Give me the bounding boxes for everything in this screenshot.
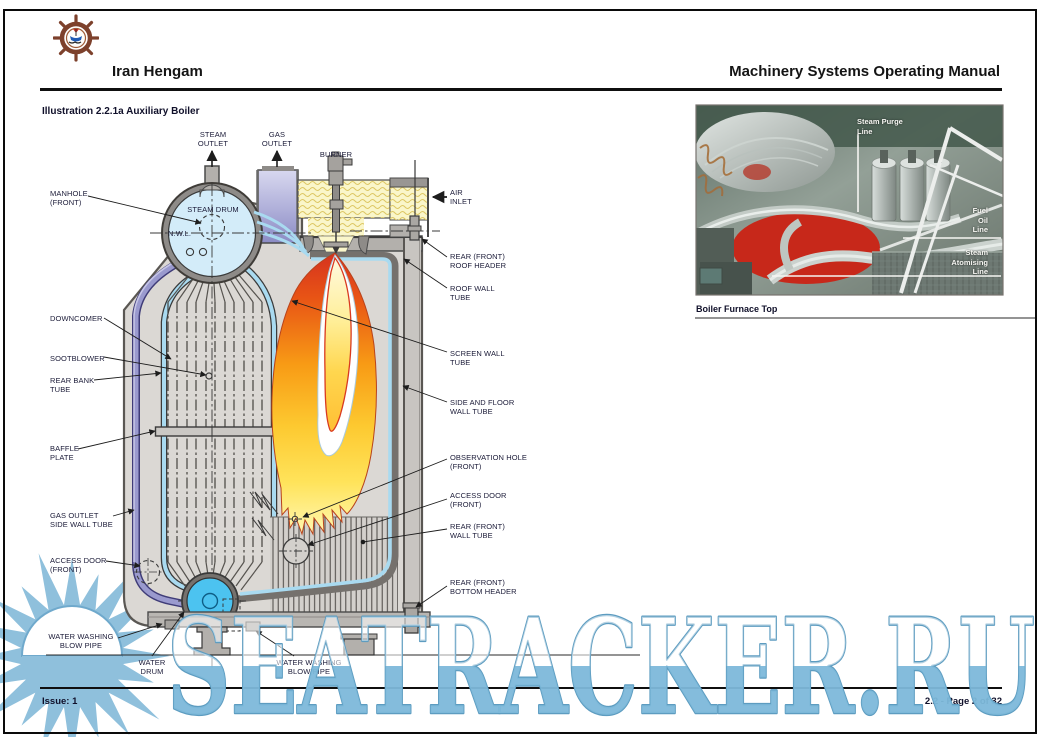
- label-rear-wall-tube: REAR (FRONT) WALL TUBE: [450, 522, 530, 540]
- label-downcomer: DOWNCOMER: [50, 314, 130, 323]
- support-block: [344, 639, 374, 655]
- label-rear-bottom-header: REAR (FRONT) BOTTOM HEADER: [450, 578, 530, 596]
- photo-label-fuel-oil: Fuel Oil Line: [950, 206, 988, 235]
- label-access-door-left: ACCESS DOOR (FRONT): [50, 556, 130, 574]
- insulated-dome: [695, 112, 835, 192]
- label-access-door-right: ACCESS DOOR (FRONT): [450, 491, 530, 509]
- label-gas-outlet-side-wall: GAS OUTLET SIDE WALL TUBE: [50, 511, 130, 529]
- illustration-title: Illustration 2.2.1a Auxiliary Boiler: [42, 106, 199, 117]
- rear-wall-tube-band: [270, 517, 398, 613]
- manual-title: Machinery Systems Operating Manual: [600, 63, 1000, 80]
- label-rear-bank-tube: REAR BANK TUBE: [50, 376, 130, 394]
- label-water-washing-right: WATER WASHING BLOW PIPE: [272, 658, 346, 676]
- boiler-diagram: [46, 152, 640, 668]
- right-wall: [405, 238, 421, 613]
- manual-page: Iran Hengam Machinery Systems Operating …: [0, 0, 1041, 737]
- label-manhole: MANHOLE (FRONT): [50, 189, 130, 207]
- label-gas-outlet: GAS OUTLET: [249, 130, 305, 148]
- photo-caption: Boiler Furnace Top: [696, 304, 777, 314]
- label-water-washing-left: WATER WASHING BLOW PIPE: [44, 632, 118, 650]
- company-name: Iran Hengam: [112, 63, 203, 80]
- label-nwl: N.W.L.: [168, 229, 198, 238]
- water-drum-pedestal: [194, 627, 230, 655]
- label-air-inlet: AIR INLET: [450, 188, 500, 206]
- footer-issue: Issue: 1: [42, 696, 77, 707]
- photo-label-steam-atomising: Steam Atomising Line: [930, 248, 988, 277]
- photo-label-steam-purge: Steam Purge Line: [857, 117, 917, 136]
- footer-rule: [40, 687, 1002, 689]
- label-sootblower: SOOTBLOWER: [50, 354, 130, 363]
- label-rear-roof-header: REAR (FRONT) ROOF HEADER: [450, 252, 530, 270]
- label-side-floor-wall-tube: SIDE AND FLOOR WALL TUBE: [450, 398, 530, 416]
- label-screen-wall-tube: SCREEN WALL TUBE: [450, 349, 530, 367]
- ship-wheel-logo: [53, 12, 99, 64]
- label-steam-drum: STEAM DRUM: [184, 205, 242, 214]
- sootblower-symbol: [206, 373, 212, 379]
- label-burner: BURNER: [308, 150, 364, 159]
- label-steam-outlet: STEAM OUTLET: [185, 130, 241, 148]
- header-rule: [40, 88, 1002, 91]
- label-water-drum: WATER DRUM: [130, 658, 174, 676]
- footer-page-number: 2.2 - Page 2 of 32: [802, 696, 1002, 707]
- blow-pipe-fitting-right: [246, 622, 260, 631]
- label-roof-wall-tube: ROOF WALL TUBE: [450, 284, 530, 302]
- label-baffle-plate: BAFFLE PLATE: [50, 444, 130, 462]
- label-observation-hole: OBSERVATION HOLE (FRONT): [450, 453, 530, 471]
